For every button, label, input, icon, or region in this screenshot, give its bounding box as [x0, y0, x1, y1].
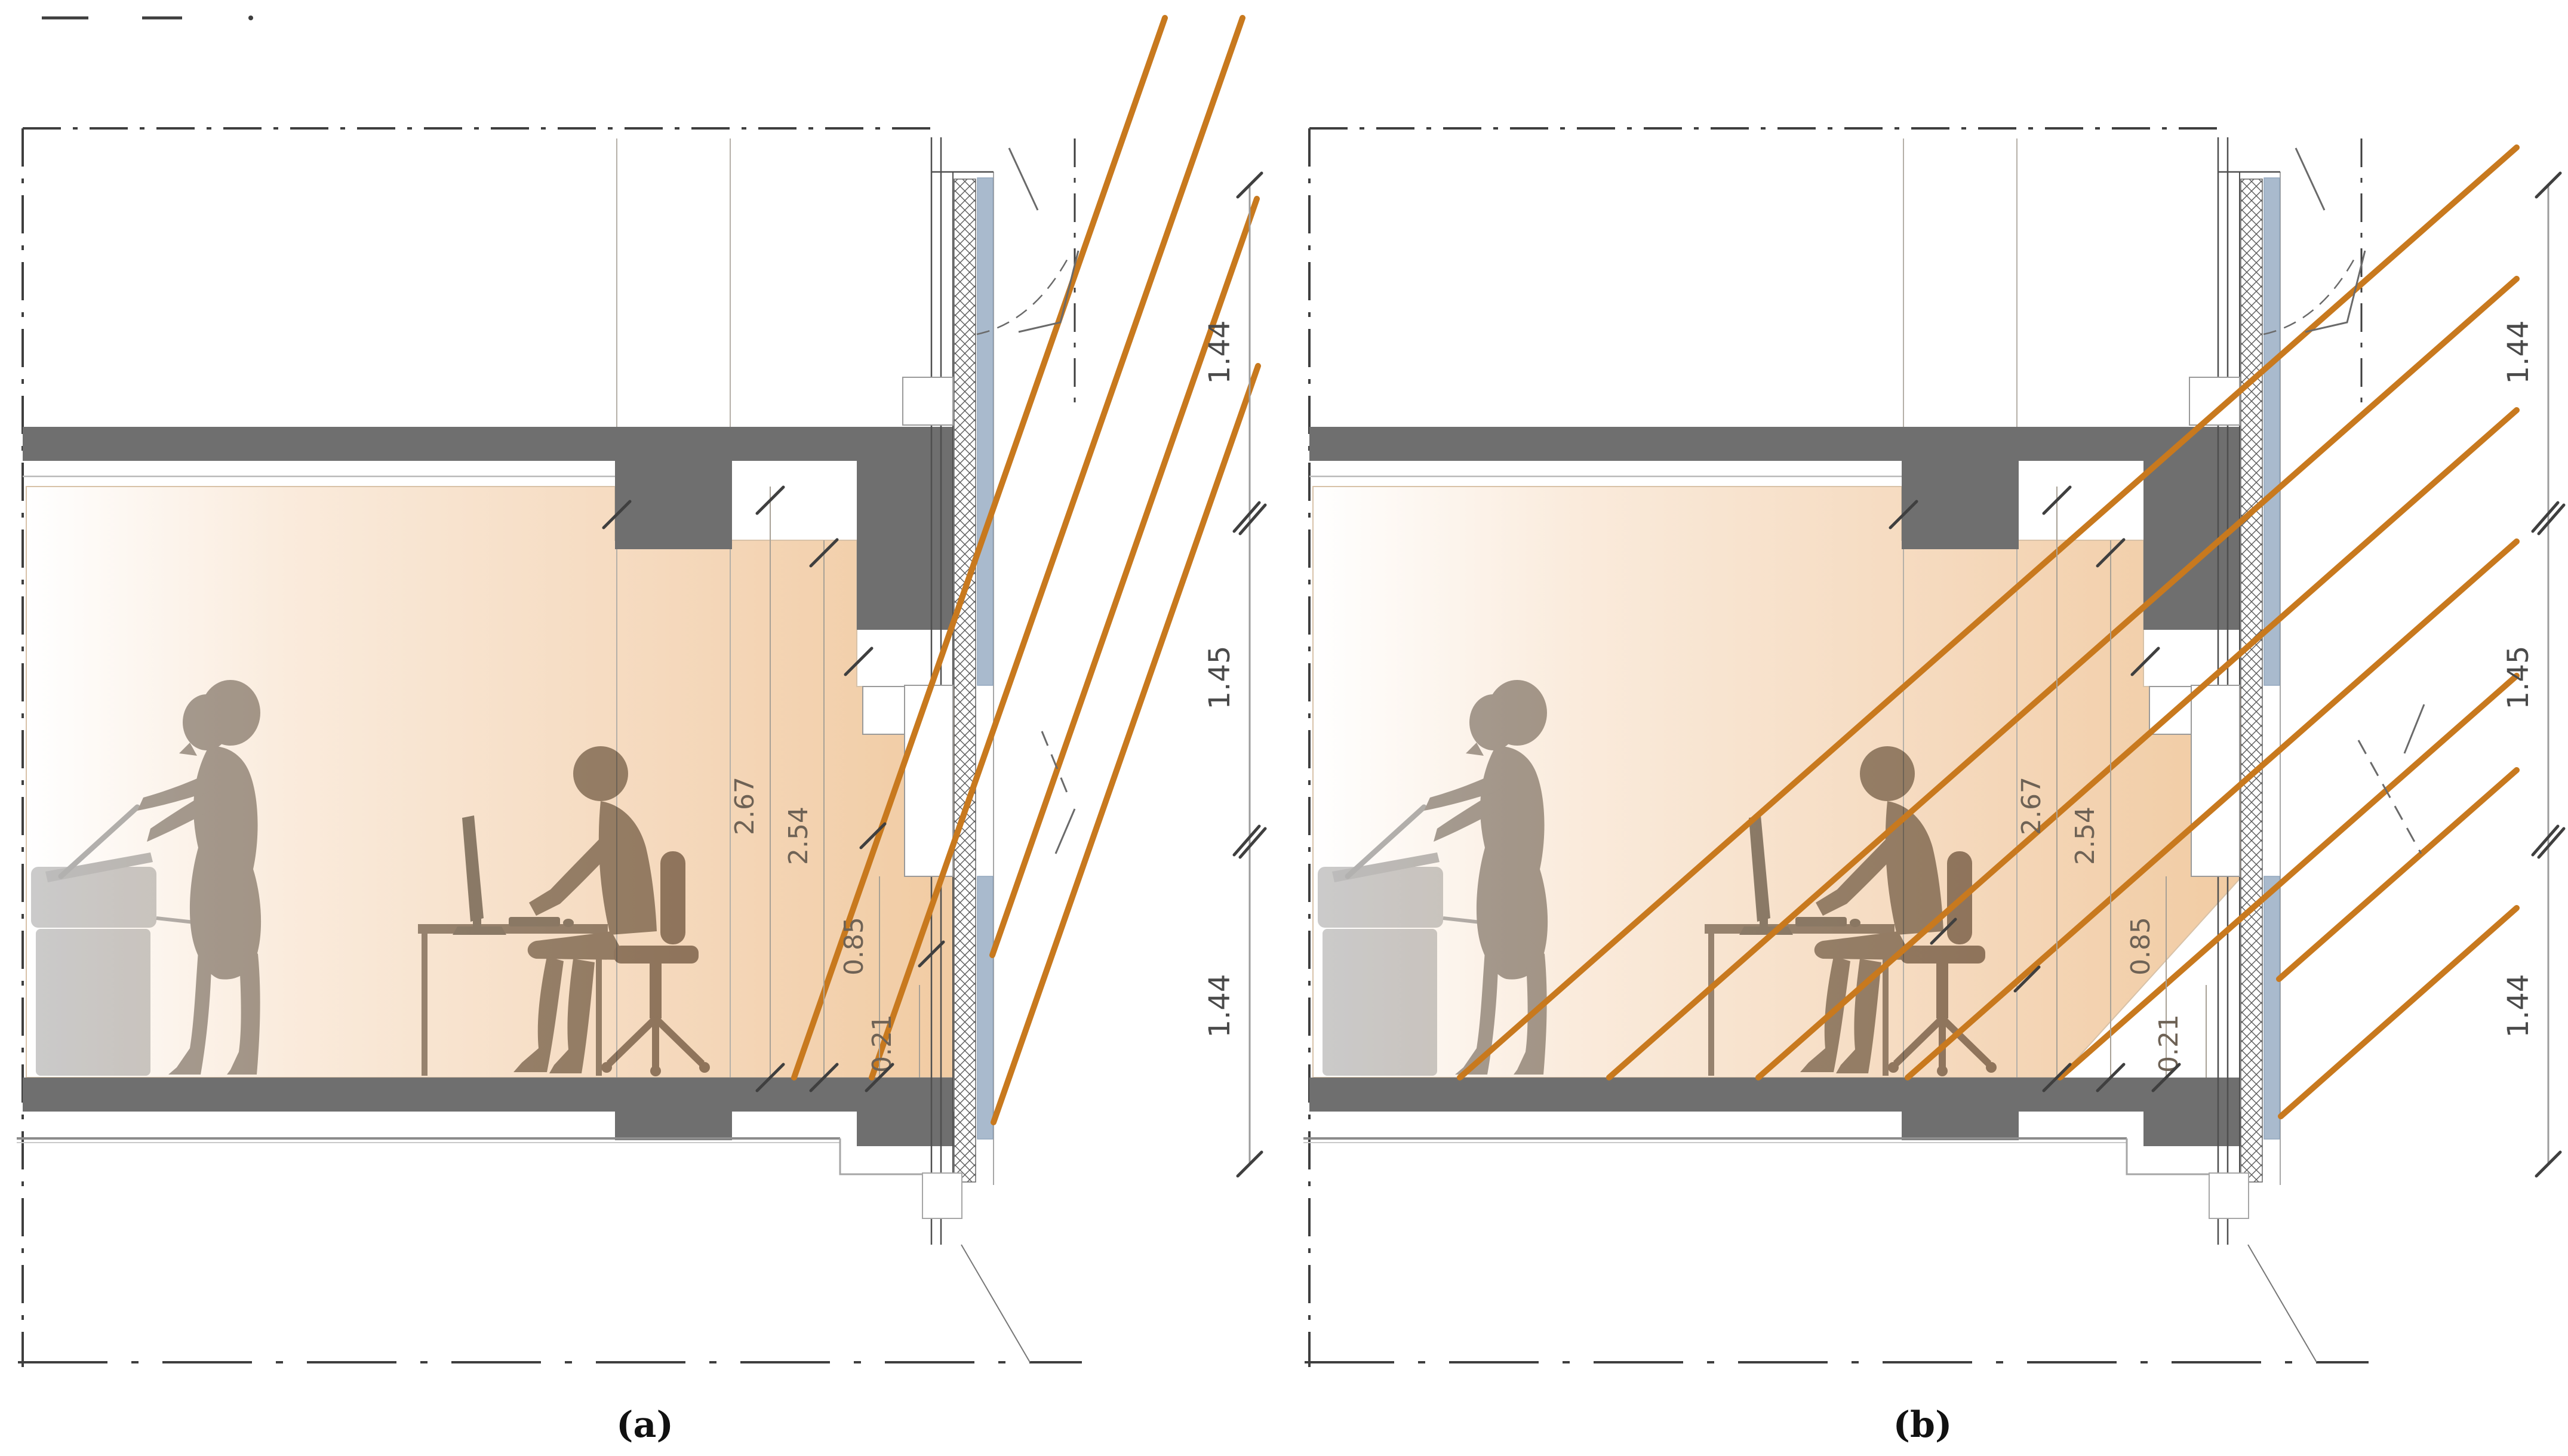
dimension-label: 1.44: [2502, 974, 2535, 1038]
desk-leg: [422, 934, 428, 1076]
reference-label: 2.67: [730, 777, 760, 835]
swing-dash-low: [2358, 740, 2421, 854]
swing-tick: [2296, 148, 2324, 210]
chair-caster: [1986, 1062, 1997, 1073]
dimension-run: 1.441.451.44: [1203, 173, 1265, 1176]
caption-b: (b): [1851, 1404, 1994, 1446]
chair-caster: [1888, 1062, 1899, 1073]
floor-beam-step: [615, 1112, 732, 1140]
drawing-a: 2.672.540.850.211.441.451.44: [17, 16, 1265, 1367]
chair-seat: [614, 946, 699, 964]
sill-box: [922, 1173, 962, 1218]
caption-a: (a): [573, 1404, 716, 1446]
ceiling-soffit-step: [615, 461, 732, 549]
daylight-fill: [1313, 487, 2242, 1078]
dimension-run: 1.441.451.44: [2502, 173, 2564, 1176]
reference-label: 0.85: [839, 917, 869, 975]
seated-person-head: [573, 746, 628, 801]
daylight-fill: [26, 487, 955, 1078]
glazing-panel-lower: [977, 876, 993, 1139]
mouse: [1850, 919, 1860, 927]
chair-caster: [699, 1062, 710, 1073]
floor-beam-step: [2143, 1112, 2248, 1146]
floor-slab: [1309, 1078, 2240, 1112]
glazing-panel-upper: [2264, 178, 2280, 685]
ceiling-soffit-step: [2143, 461, 2240, 630]
transom-box: [905, 685, 953, 876]
ceiling-slab: [1309, 427, 2240, 461]
chair-caster: [1937, 1066, 1948, 1076]
dimension-label: 1.44: [2502, 321, 2535, 384]
sun-ray: [2281, 908, 2517, 1116]
swing-tick: [1009, 148, 1038, 210]
dimension-label: 1.44: [1203, 974, 1237, 1038]
mouse: [563, 919, 574, 927]
standing-person-head: [183, 694, 230, 750]
monitor-neck: [473, 918, 481, 928]
transom-box: [2191, 685, 2240, 876]
chair-caster: [650, 1066, 661, 1076]
glazing-panel-lower: [2264, 876, 2280, 1139]
swing-v-low: [2404, 704, 2424, 753]
standing-person-head: [1469, 694, 1517, 750]
sill-box: [2209, 1173, 2249, 1218]
reference-label: 2.67: [2016, 777, 2047, 835]
reference-label: 2.54: [783, 807, 814, 865]
copier-base: [1323, 929, 1437, 1076]
floor-beam-step: [857, 1112, 961, 1146]
floor-beam-step: [1902, 1112, 2019, 1140]
head-bracket-box: [903, 377, 953, 425]
reference-label: 0.85: [2126, 917, 2156, 975]
copier-base: [36, 929, 150, 1076]
insulation-hatch-strip: [2241, 179, 2262, 1182]
monitor-base: [1739, 926, 1793, 935]
chair-column: [1936, 964, 1948, 1018]
glazing-panel-upper: [977, 178, 993, 685]
swing-v-low: [1056, 809, 1075, 854]
below-sill-diagonal: [961, 1245, 1030, 1362]
mid-bracket-box: [863, 687, 905, 734]
below-sill-diagonal: [2248, 1245, 2317, 1362]
seated-person-head: [1860, 746, 1915, 801]
chair-seat: [1900, 946, 1985, 964]
floor-slab: [23, 1078, 953, 1112]
ceiling-soffit-step: [857, 461, 953, 630]
monitor-neck: [1760, 918, 1768, 928]
dimension-label: 1.45: [2502, 646, 2535, 710]
top-edge-dot: [248, 16, 253, 20]
monitor-base: [453, 926, 506, 935]
chair-caster: [601, 1062, 612, 1073]
sun-ray: [2279, 770, 2517, 979]
dimension-label: 1.44: [1203, 321, 1237, 384]
keyboard: [509, 917, 560, 926]
keyboard: [1795, 917, 1847, 926]
drawing-b: 2.672.540.850.211.441.451.44: [1303, 128, 2564, 1367]
sun-ray: [992, 199, 1257, 955]
ceiling-slab: [23, 427, 953, 461]
sections-canvas: 2.672.540.850.211.441.451.442.672.540.85…: [0, 0, 2568, 1456]
desk-leg: [1708, 934, 1714, 1076]
figure-daylight-sections: 2.672.540.850.211.441.451.442.672.540.85…: [0, 0, 2568, 1456]
chair-column: [650, 964, 662, 1018]
dimension-label: 1.45: [1203, 646, 1237, 710]
chair-backrest: [660, 851, 685, 944]
reference-label: 2.54: [2070, 807, 2100, 865]
insulation-hatch-strip: [954, 179, 976, 1182]
ceiling-soffit-step: [1902, 461, 2019, 549]
